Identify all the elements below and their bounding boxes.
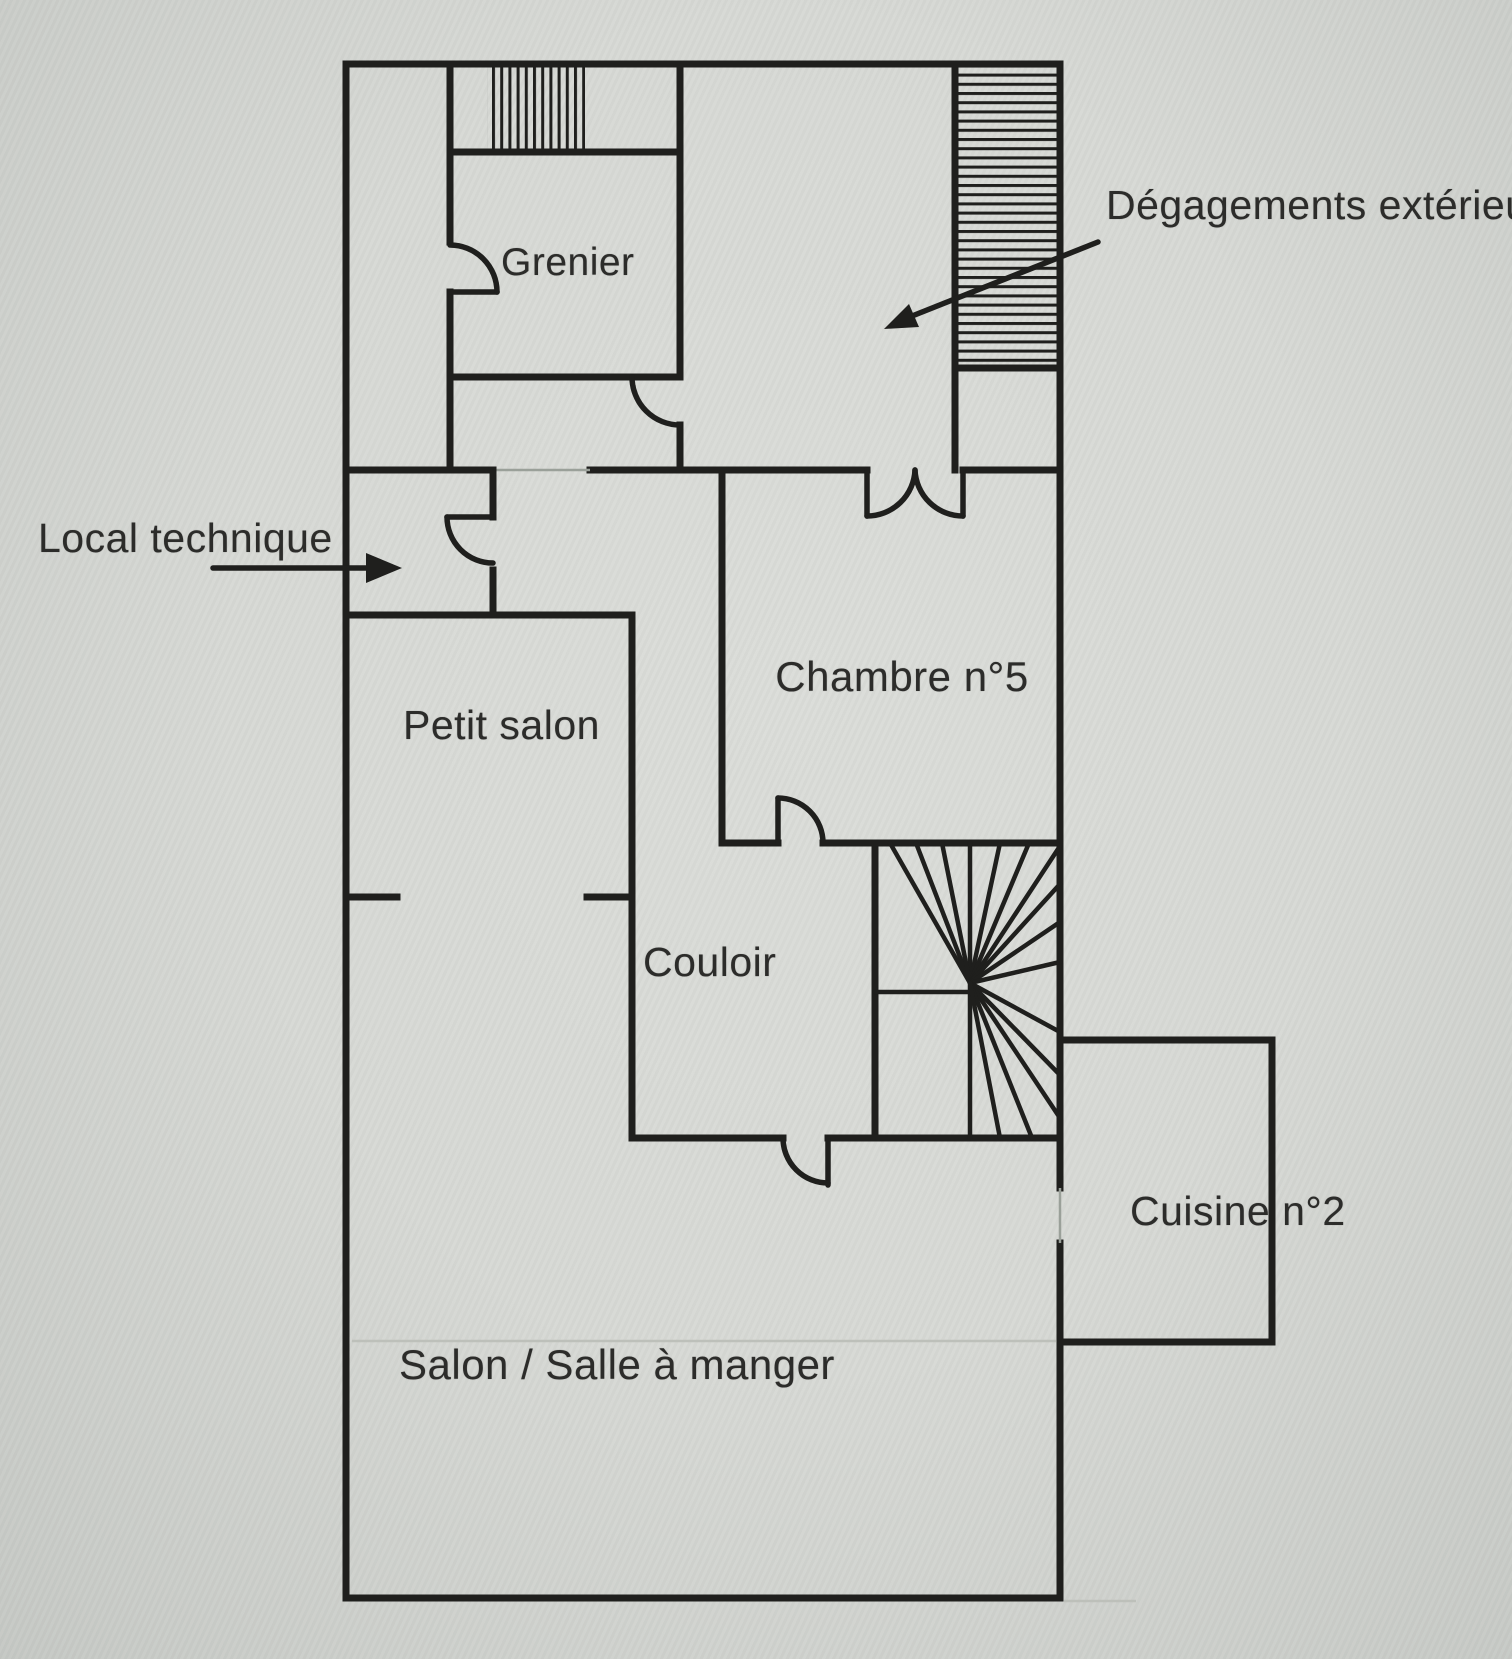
exterior-stair-hatch-icon [957,66,1057,366]
upper-room-door-icon [632,377,680,425]
interior-walls-top [346,64,1060,470]
room-label-petit-salon: Petit salon [403,703,600,748]
room-label-chambre5: Chambre n°5 [775,654,1028,700]
floorplan-drawing [0,0,1512,1659]
technical-room-door-icon [447,517,493,563]
interior-walls-middle [346,470,1060,1138]
grenier-stair-hatch-icon [487,66,585,150]
room-label-cuisine: Cuisine n°2 [1130,1189,1346,1234]
grenier-door-icon [450,245,497,292]
winder-stair-icon [875,843,1060,1138]
stair-tread [970,983,1060,1032]
corridor-door-icon [783,1138,828,1185]
room-label-couloir: Couloir [643,940,776,985]
room-label-salon: Salon / Salle à manger [399,1342,835,1388]
room-label-grenier: Grenier [501,242,635,285]
stair-tread [916,843,970,983]
annotation-label-technical-room: Local technique [38,516,333,561]
bedroom-door-icon [778,798,823,843]
floorplan-page: Grenier Chambre n°5 Petit salon Couloir … [0,0,1512,1659]
double-door-icon [867,470,963,516]
annotation-label-exterior-access: Dégagements extérieur [1106,183,1512,228]
